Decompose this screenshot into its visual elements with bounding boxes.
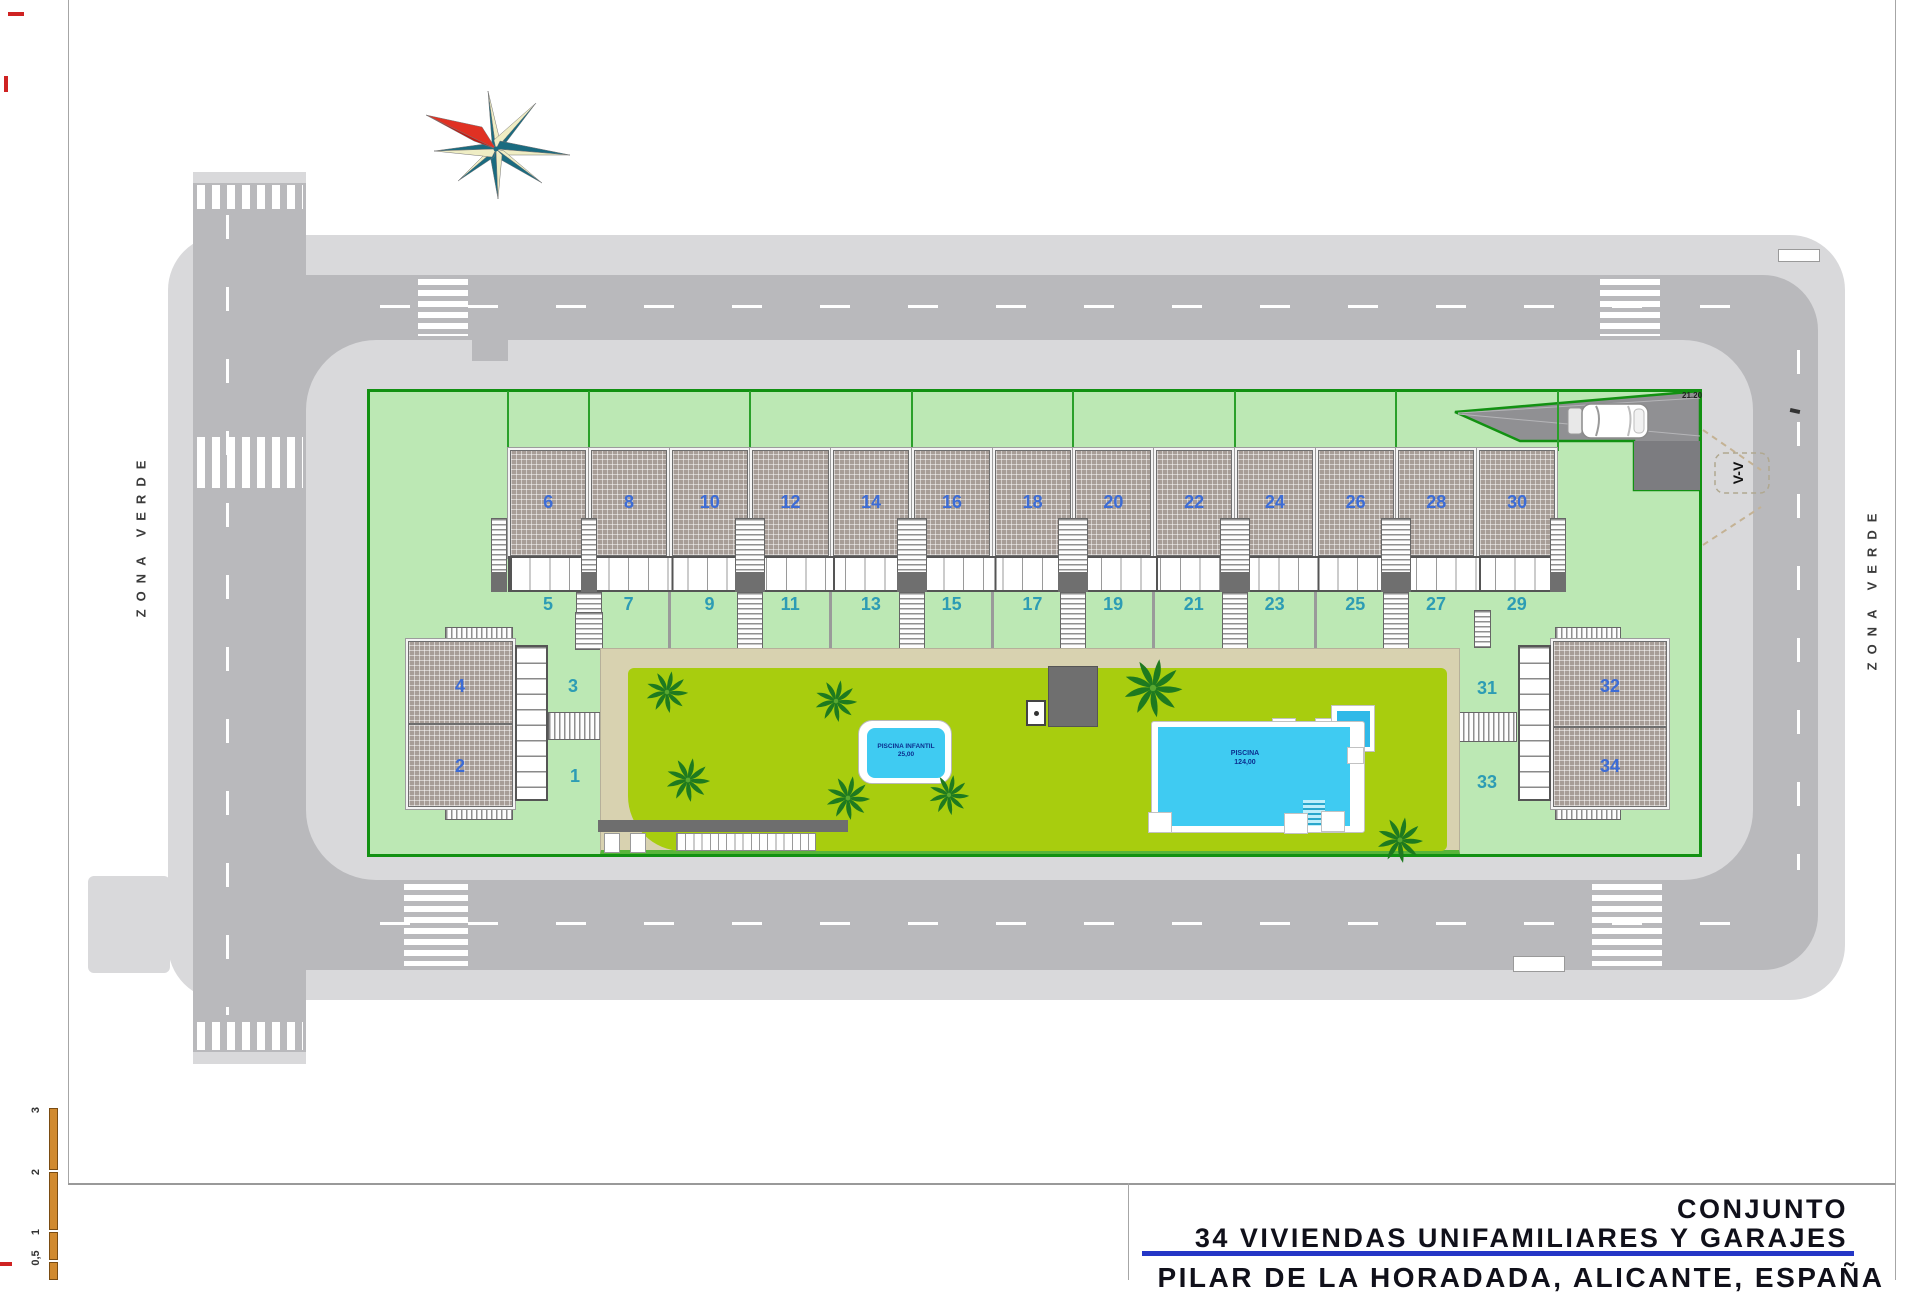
scale-bar-label: 1	[30, 1222, 42, 1242]
plot-divider	[588, 391, 590, 451]
plot-divider	[1395, 391, 1397, 451]
plot-divider	[1557, 391, 1559, 451]
plot-number: 3	[545, 676, 601, 697]
unit-number: 6	[510, 492, 586, 513]
pergola-post	[604, 833, 620, 853]
plot-wall	[1314, 592, 1317, 648]
registration-mark	[8, 12, 24, 16]
plot-divider	[1072, 391, 1074, 451]
unit-number: 26	[1318, 492, 1394, 513]
road-left	[193, 183, 306, 1052]
right-building-terraces	[1518, 645, 1551, 801]
plot-wall	[829, 592, 832, 648]
palm-tree-icon	[1121, 656, 1185, 720]
pergola-beam	[598, 820, 848, 832]
plot-number: 29	[1487, 594, 1547, 615]
plot-divider	[911, 391, 913, 451]
unit-number: 14	[833, 492, 909, 513]
ramp-dimension-label: 21.20	[1682, 391, 1702, 400]
plot-divider	[1234, 391, 1236, 451]
lane-dash-right-road	[1797, 350, 1800, 870]
registration-mark	[0, 1262, 12, 1266]
unit-number: 34	[1580, 756, 1640, 777]
left-building-split	[409, 723, 512, 725]
stairs-right-building-top	[1555, 627, 1621, 641]
section-marker-label: V-V	[1730, 462, 1746, 485]
plot-number: 33	[1459, 772, 1515, 793]
plot-number: 15	[922, 594, 982, 615]
plot-number: 23	[1245, 594, 1305, 615]
stairwell-landing	[735, 572, 765, 592]
stairwell-landing	[581, 572, 597, 592]
plot-divider	[749, 391, 751, 451]
zona-verde-left-label: ZONA VERDE	[134, 453, 149, 618]
unit-number: 30	[1479, 492, 1555, 513]
compass-rose-icon	[408, 85, 578, 215]
unit-number: 10	[672, 492, 748, 513]
section-marker-graphics	[1695, 415, 1785, 560]
crosswalk-bottom-west	[404, 884, 468, 966]
plot-number: 9	[680, 594, 740, 615]
scale-bar-label: 2	[30, 1162, 42, 1182]
main-pool-area: 124,00	[1210, 759, 1280, 768]
plot-wall	[1152, 592, 1155, 648]
palm-tree-icon	[644, 669, 690, 715]
titleblock-project-type: CONJUNTO	[1128, 1194, 1848, 1225]
titleblock-blue-rule	[1142, 1251, 1854, 1256]
sheet-frame-left	[68, 0, 69, 1183]
pergola-post	[630, 833, 646, 853]
crosswalk-bottom-east	[1592, 884, 1662, 966]
plot-number: 7	[599, 594, 659, 615]
plot-number: 31	[1459, 678, 1515, 699]
lane-dash-bottom-road	[380, 922, 1740, 925]
kids-pool-label: PISCINA INFANTIL	[863, 743, 949, 751]
unit-number: 20	[1075, 492, 1151, 513]
unit-number: 18	[995, 492, 1071, 513]
stairwell-landing	[491, 572, 507, 592]
registration-mark	[4, 76, 8, 92]
palm-tree-icon	[824, 774, 872, 822]
sidewalk-cap-bottom	[193, 1050, 306, 1064]
scale-bar-segment	[49, 1262, 58, 1280]
unit-number: 2	[430, 756, 490, 777]
plot-number: 25	[1325, 594, 1385, 615]
crosswalk-left-middle	[197, 437, 303, 488]
titleblock-location: PILAR DE LA HORADADA, ALICANTE, ESPAÑA	[1128, 1262, 1914, 1294]
sheet-frame-right	[1895, 0, 1896, 1280]
crosswalk-left-bottom	[197, 1022, 303, 1050]
unit-number: 24	[1237, 492, 1313, 513]
stairs-left-building-top	[445, 627, 513, 641]
lane-dash-left-road	[226, 215, 229, 1015]
lane-dash-top-road	[380, 305, 1740, 308]
plot-number: 21	[1164, 594, 1224, 615]
parking-mark-bottom	[1513, 956, 1565, 972]
zona-verde-right-label: ZONA VERDE	[1865, 506, 1880, 671]
scale-bar-label: 0,5	[30, 1248, 42, 1268]
right-building-split	[1554, 726, 1666, 728]
sidewalk-bay-left	[88, 876, 170, 973]
unit-number: 12	[752, 492, 828, 513]
scale-bar-label: 3	[30, 1100, 42, 1120]
right-building-stairs-upper	[1474, 610, 1491, 648]
unit-number: 16	[914, 492, 990, 513]
stairwell-landing	[897, 572, 927, 592]
scale-bar-segment	[49, 1108, 58, 1170]
unit-number: 4	[430, 676, 490, 697]
car-icon	[1566, 400, 1652, 442]
left-building-terraces	[515, 645, 548, 801]
plot-number: 5	[518, 594, 578, 615]
plot-divider	[507, 391, 509, 451]
titleblock-project-name: 34 VIVIENDAS UNIFAMILIARES Y GARAJES	[1128, 1223, 1848, 1254]
stairwell-landing	[1058, 572, 1088, 592]
stairwell-landing	[1220, 572, 1250, 592]
plot-number: 17	[1002, 594, 1062, 615]
site-plan-canvas: 21.20 681012141618202224262830 579111315…	[0, 0, 1920, 1280]
meter-box	[1026, 700, 1046, 726]
palm-tree-icon	[664, 756, 712, 804]
stairs-right-building-bottom	[1555, 806, 1621, 820]
plot-number: 11	[760, 594, 820, 615]
storage-stalls	[676, 833, 816, 851]
plot-number: 19	[1083, 594, 1143, 615]
plot-wall	[668, 592, 671, 648]
scale-bar-segment	[49, 1172, 58, 1230]
main-pool-label: PISCINA	[1210, 750, 1280, 759]
palm-tree-icon	[813, 678, 859, 724]
driveway-stub	[472, 340, 508, 361]
left-building-stairs-upper	[575, 612, 603, 650]
stairwell-landing	[1550, 572, 1566, 592]
unit-number: 32	[1580, 676, 1640, 697]
plot-wall	[991, 592, 994, 648]
stairwell-landing	[1381, 572, 1411, 592]
palm-tree-icon	[1375, 815, 1425, 865]
palm-tree-icon	[927, 773, 971, 817]
titleblock-top-line	[68, 1183, 1895, 1185]
stairs-left-building-bottom	[445, 806, 513, 820]
unit-number: 28	[1398, 492, 1474, 513]
plot-number: 27	[1406, 594, 1466, 615]
unit-number: 22	[1156, 492, 1232, 513]
utility-structure	[1048, 666, 1098, 727]
parking-mark-top	[1778, 249, 1820, 262]
scale-bar-segment	[49, 1232, 58, 1260]
plot-number: 1	[547, 766, 603, 787]
kids-pool-area: 25,00	[863, 751, 949, 759]
right-building-roof	[1553, 641, 1667, 807]
unit-number: 8	[591, 492, 667, 513]
crosswalk-left-top	[197, 185, 303, 209]
plot-number: 13	[841, 594, 901, 615]
